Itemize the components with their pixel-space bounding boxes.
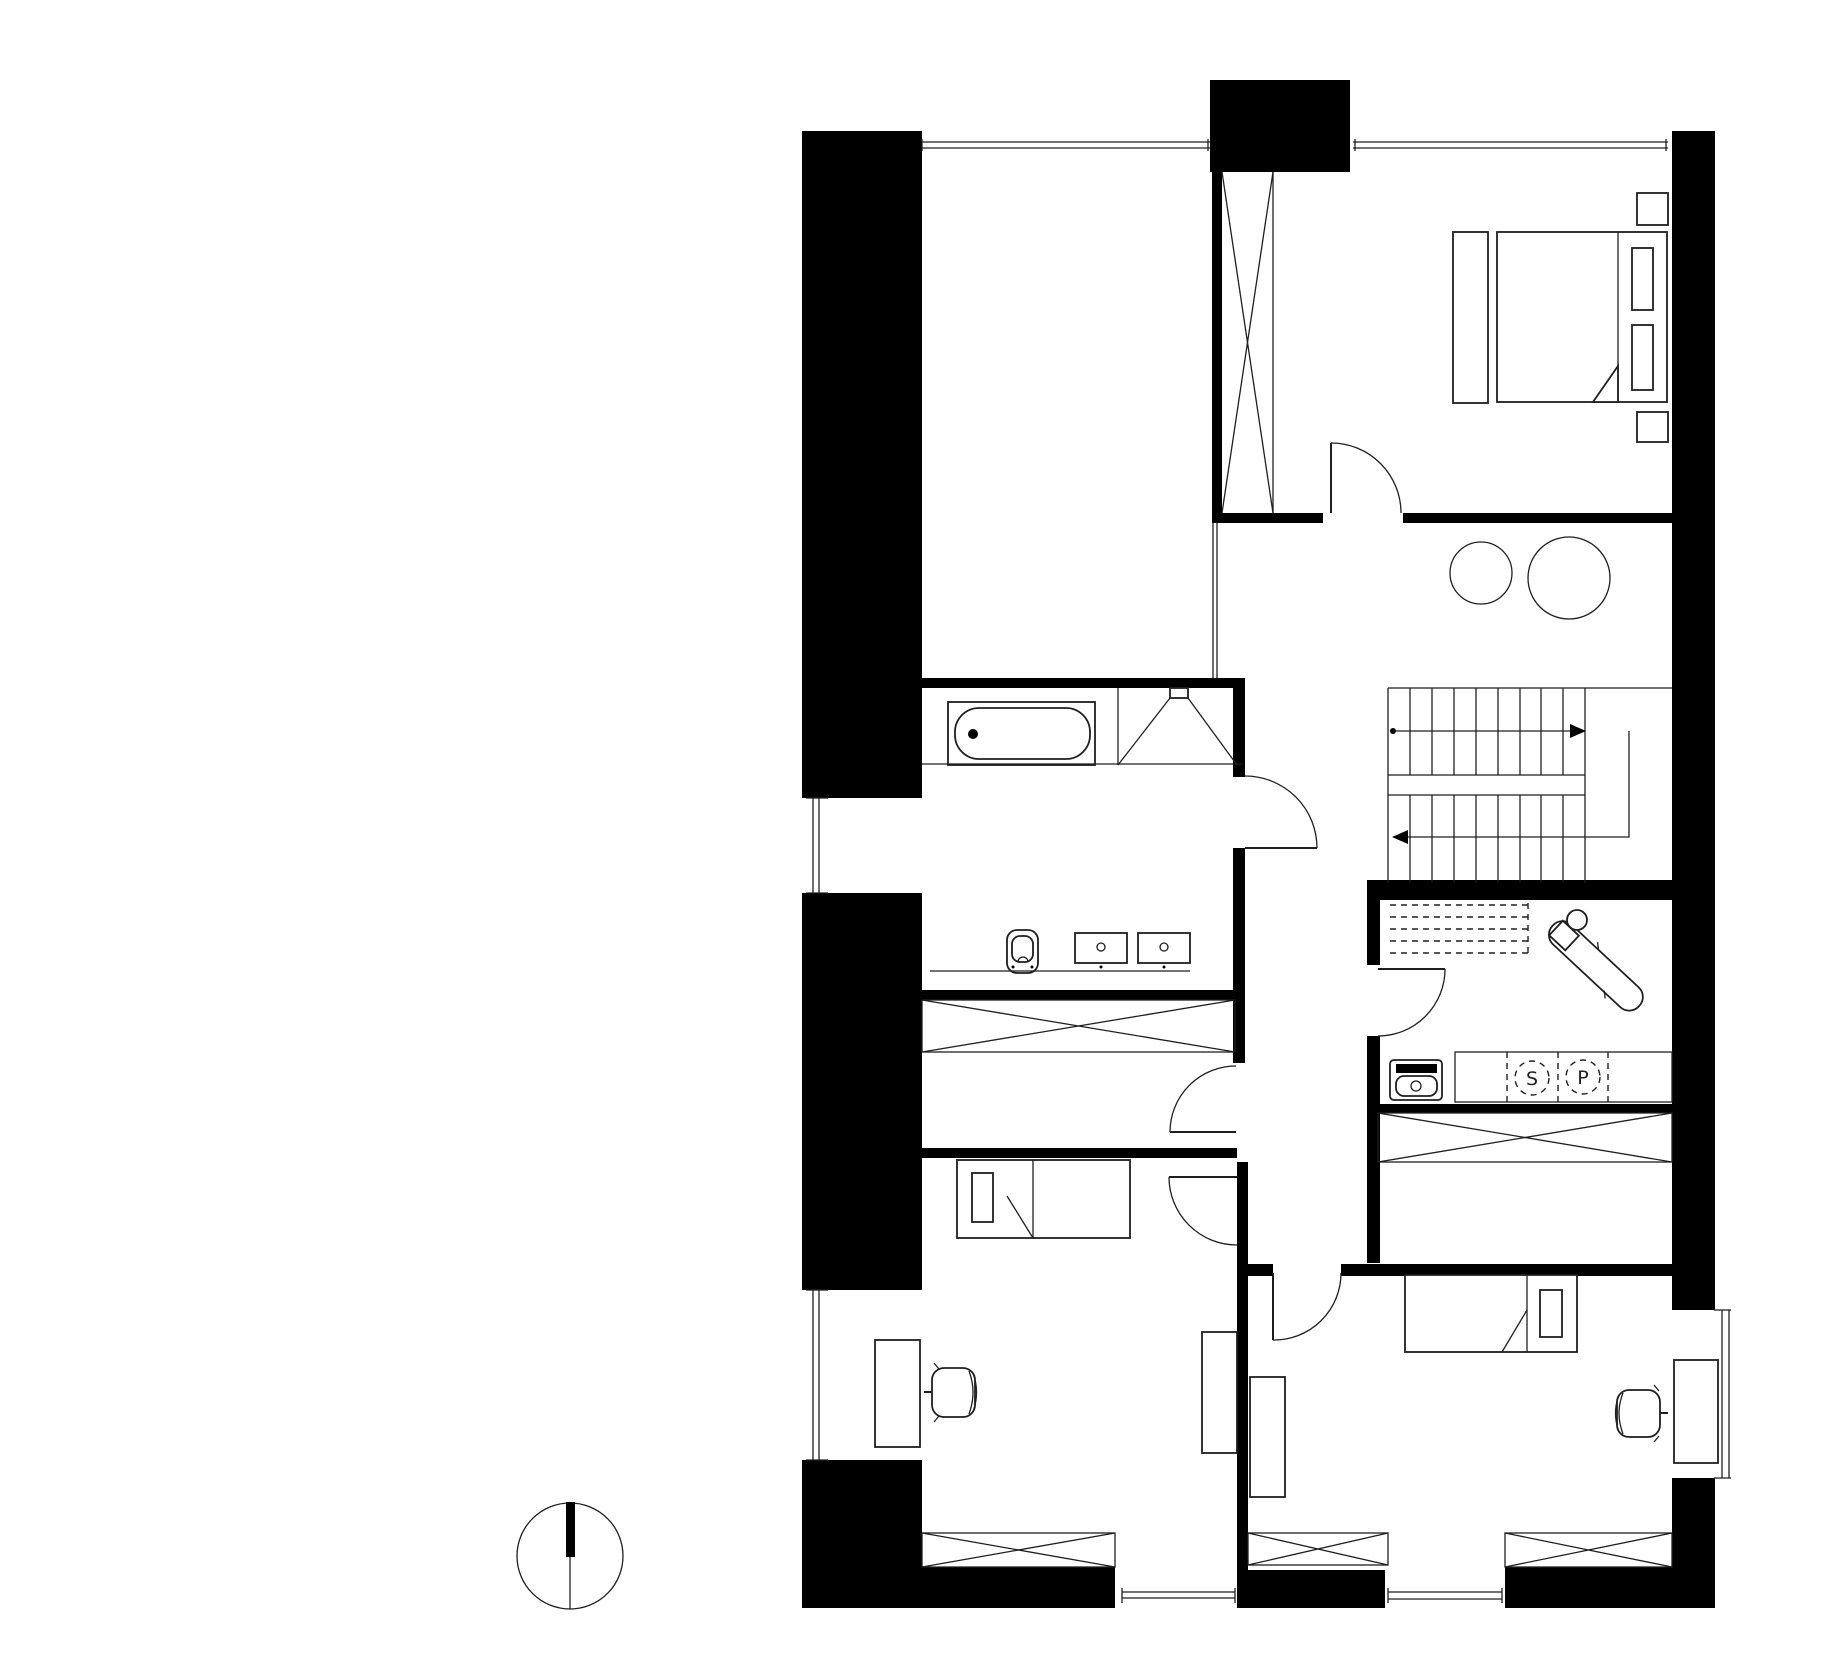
bed-kid-right — [1405, 1275, 1577, 1352]
cabinet-right-room — [1250, 1377, 1285, 1497]
desk-left — [875, 1340, 920, 1447]
office-chair-left — [924, 1363, 977, 1422]
duct-shaft — [1222, 172, 1273, 513]
nightstand-top — [1637, 193, 1668, 225]
window-bottom-right — [1388, 1588, 1502, 1603]
hall-stool-small — [1450, 542, 1512, 604]
door-kid-bedroom-left — [1169, 1177, 1237, 1245]
master-bed — [1497, 232, 1667, 402]
door-master-bedroom — [1331, 443, 1401, 513]
bed-kid-left — [957, 1160, 1130, 1238]
floor-plan-drawing: S P — [0, 0, 1843, 1677]
wardrobe-bottom-left — [922, 1533, 1115, 1567]
window-top-right — [1353, 139, 1668, 151]
cabinet-left-room — [1202, 1332, 1237, 1453]
office-chair-right — [1616, 1385, 1669, 1442]
door-kid-bedroom-right — [1273, 1273, 1341, 1340]
utility-shelving — [1390, 903, 1528, 955]
laundry-sink — [1390, 1060, 1442, 1100]
north-arrow-compass — [517, 1502, 623, 1609]
washer-label: P — [1577, 1067, 1588, 1089]
window-left-lower — [806, 1290, 828, 1460]
window-bottom-left — [1122, 1588, 1235, 1603]
hall-stool-large — [1528, 537, 1610, 619]
floor-plan-page: S P — [0, 0, 1843, 1677]
dryer-circle: S — [1515, 1061, 1549, 1095]
utility-closet — [1378, 1113, 1672, 1162]
wardrobe-bottom-middle — [1248, 1533, 1388, 1565]
stair-walking-line — [1390, 724, 1629, 844]
door-corridor — [1170, 1066, 1236, 1132]
door-bathroom — [1245, 776, 1317, 848]
staircase — [1388, 688, 1672, 883]
stair-treads-lower — [1410, 795, 1563, 883]
door-utility-room — [1378, 969, 1445, 1036]
toilet — [1007, 930, 1038, 973]
window-top-left — [922, 139, 1210, 151]
hall-partition-wall — [1213, 523, 1217, 678]
dryer-label: S — [1526, 1068, 1538, 1090]
appliance-counter: S P — [1455, 1052, 1672, 1102]
bathtub — [948, 702, 1095, 765]
vanity-sinks — [930, 933, 1190, 971]
bedroom-bench — [1453, 232, 1488, 403]
ironing-board — [1541, 910, 1652, 1019]
wardrobe-bottom-right — [1505, 1533, 1672, 1567]
washer-circle: P — [1566, 1060, 1600, 1094]
nightstand-bottom — [1637, 412, 1668, 442]
desk-right — [1674, 1360, 1718, 1463]
shower — [1118, 688, 1237, 765]
window-left-upper — [806, 798, 828, 893]
hall-closet — [922, 1000, 1235, 1052]
